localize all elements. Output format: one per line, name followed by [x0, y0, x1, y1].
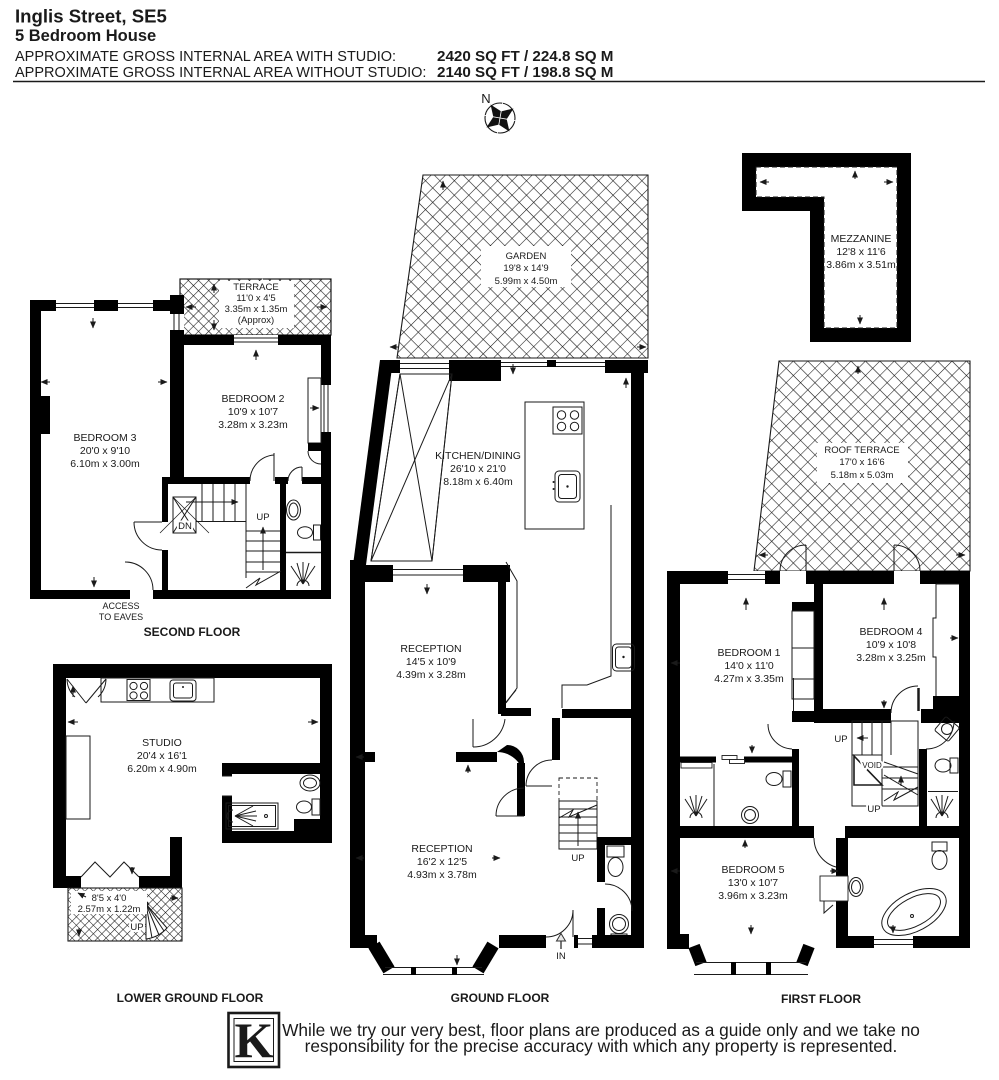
svg-text:UP: UP	[867, 804, 880, 815]
svg-text:3.35m x 1.35m: 3.35m x 1.35m	[225, 304, 288, 315]
svg-text:UP: UP	[834, 734, 847, 745]
svg-text:BEDROOM 3: BEDROOM 3	[73, 432, 136, 444]
svg-text:responsibility for the precise: responsibility for the precise accuracy …	[305, 1036, 898, 1056]
svg-text:10'9 x 10'8: 10'9 x 10'8	[866, 639, 916, 651]
svg-text:12'8 x 11'6: 12'8 x 11'6	[836, 246, 886, 258]
svg-text:3.96m x 3.23m: 3.96m x 3.23m	[718, 890, 788, 902]
svg-text:IN: IN	[556, 951, 566, 962]
svg-text:4.39m x 3.28m: 4.39m x 3.28m	[396, 669, 466, 681]
svg-text:6.20m x 4.90m: 6.20m x 4.90m	[127, 763, 197, 775]
svg-text:14'5 x 10'9: 14'5 x 10'9	[406, 656, 456, 668]
svg-text:19'8 x 14'9: 19'8 x 14'9	[503, 263, 548, 274]
svg-text:LOWER GROUND FLOOR: LOWER GROUND FLOOR	[117, 991, 264, 1005]
svg-text:8'5 x 4'0: 8'5 x 4'0	[92, 893, 127, 904]
svg-text:BEDROOM 5: BEDROOM 5	[721, 864, 784, 876]
svg-text:8.18m x 6.40m: 8.18m x 6.40m	[443, 476, 513, 488]
svg-text:2140 SQ FT / 198.8 SQ M: 2140 SQ FT / 198.8 SQ M	[437, 64, 613, 81]
svg-text:ROOF TERRACE: ROOF TERRACE	[824, 445, 899, 456]
svg-text:Inglis Street, SE5: Inglis Street, SE5	[15, 6, 167, 27]
svg-text:20'4 x 16'1: 20'4 x 16'1	[137, 750, 187, 762]
svg-text:BEDROOM 2: BEDROOM 2	[221, 393, 284, 405]
svg-text:GARDEN: GARDEN	[506, 251, 547, 262]
svg-text:APPROXIMATE GROSS INTERNAL ARE: APPROXIMATE GROSS INTERNAL AREA WITH STU…	[15, 49, 396, 65]
svg-text:2420 SQ FT / 224.8 SQ M: 2420 SQ FT / 224.8 SQ M	[437, 48, 613, 65]
svg-text:13'0 x 10'7: 13'0 x 10'7	[728, 877, 778, 889]
svg-text:3.28m x 3.25m: 3.28m x 3.25m	[856, 652, 926, 664]
svg-text:5.99m x 4.50m: 5.99m x 4.50m	[495, 276, 558, 287]
svg-text:2.57m x 1.22m: 2.57m x 1.22m	[78, 904, 141, 915]
svg-text:N: N	[481, 91, 490, 106]
svg-text:11'0 x 4'5: 11'0 x 4'5	[236, 293, 275, 304]
svg-text:(Approx): (Approx)	[238, 315, 274, 326]
svg-text:26'10 x 21'0: 26'10 x 21'0	[450, 463, 506, 475]
svg-text:DN: DN	[178, 521, 192, 532]
svg-text:TO EAVES: TO EAVES	[99, 612, 143, 622]
svg-text:KITCHEN/DINING: KITCHEN/DINING	[435, 450, 521, 462]
svg-text:UP: UP	[130, 922, 143, 933]
svg-text:17'0 x 16'6: 17'0 x 16'6	[839, 457, 884, 468]
svg-text:RECEPTION: RECEPTION	[411, 843, 472, 855]
svg-text:ACCESS: ACCESS	[102, 601, 139, 611]
svg-text:VOID: VOID	[862, 761, 882, 770]
svg-text:SECOND FLOOR: SECOND FLOOR	[144, 625, 241, 639]
svg-text:K: K	[235, 1012, 274, 1068]
svg-text:5.18m x 5.03m: 5.18m x 5.03m	[831, 470, 894, 481]
svg-text:APPROXIMATE GROSS INTERNAL ARE: APPROXIMATE GROSS INTERNAL AREA WITHOUT …	[15, 65, 426, 81]
svg-text:14'0 x 11'0: 14'0 x 11'0	[724, 660, 774, 672]
svg-text:MEZZANINE: MEZZANINE	[831, 233, 892, 245]
svg-text:6.10m x 3.00m: 6.10m x 3.00m	[70, 458, 140, 470]
svg-text:GROUND FLOOR: GROUND FLOOR	[451, 991, 550, 1005]
svg-text:RECEPTION: RECEPTION	[400, 643, 461, 655]
svg-text:3.28m x 3.23m: 3.28m x 3.23m	[218, 419, 288, 431]
svg-text:10'9 x 10'7: 10'9 x 10'7	[228, 406, 278, 418]
svg-text:3.86m x 3.51m: 3.86m x 3.51m	[826, 259, 896, 271]
svg-text:5 Bedroom House: 5 Bedroom House	[15, 27, 156, 45]
svg-text:BEDROOM 1: BEDROOM 1	[717, 647, 780, 659]
svg-text:20'0 x 9'10: 20'0 x 9'10	[80, 445, 130, 457]
svg-text:4.27m x 3.35m: 4.27m x 3.35m	[714, 673, 784, 685]
svg-text:BEDROOM 4: BEDROOM 4	[859, 626, 922, 638]
svg-text:UP: UP	[256, 512, 269, 523]
svg-text:TERRACE: TERRACE	[233, 282, 278, 293]
svg-text:STUDIO: STUDIO	[142, 737, 182, 749]
svg-text:FIRST FLOOR: FIRST FLOOR	[781, 992, 861, 1006]
svg-text:4.93m x 3.78m: 4.93m x 3.78m	[407, 869, 477, 881]
svg-text:16'2 x 12'5: 16'2 x 12'5	[417, 856, 467, 868]
svg-text:UP: UP	[571, 853, 584, 864]
